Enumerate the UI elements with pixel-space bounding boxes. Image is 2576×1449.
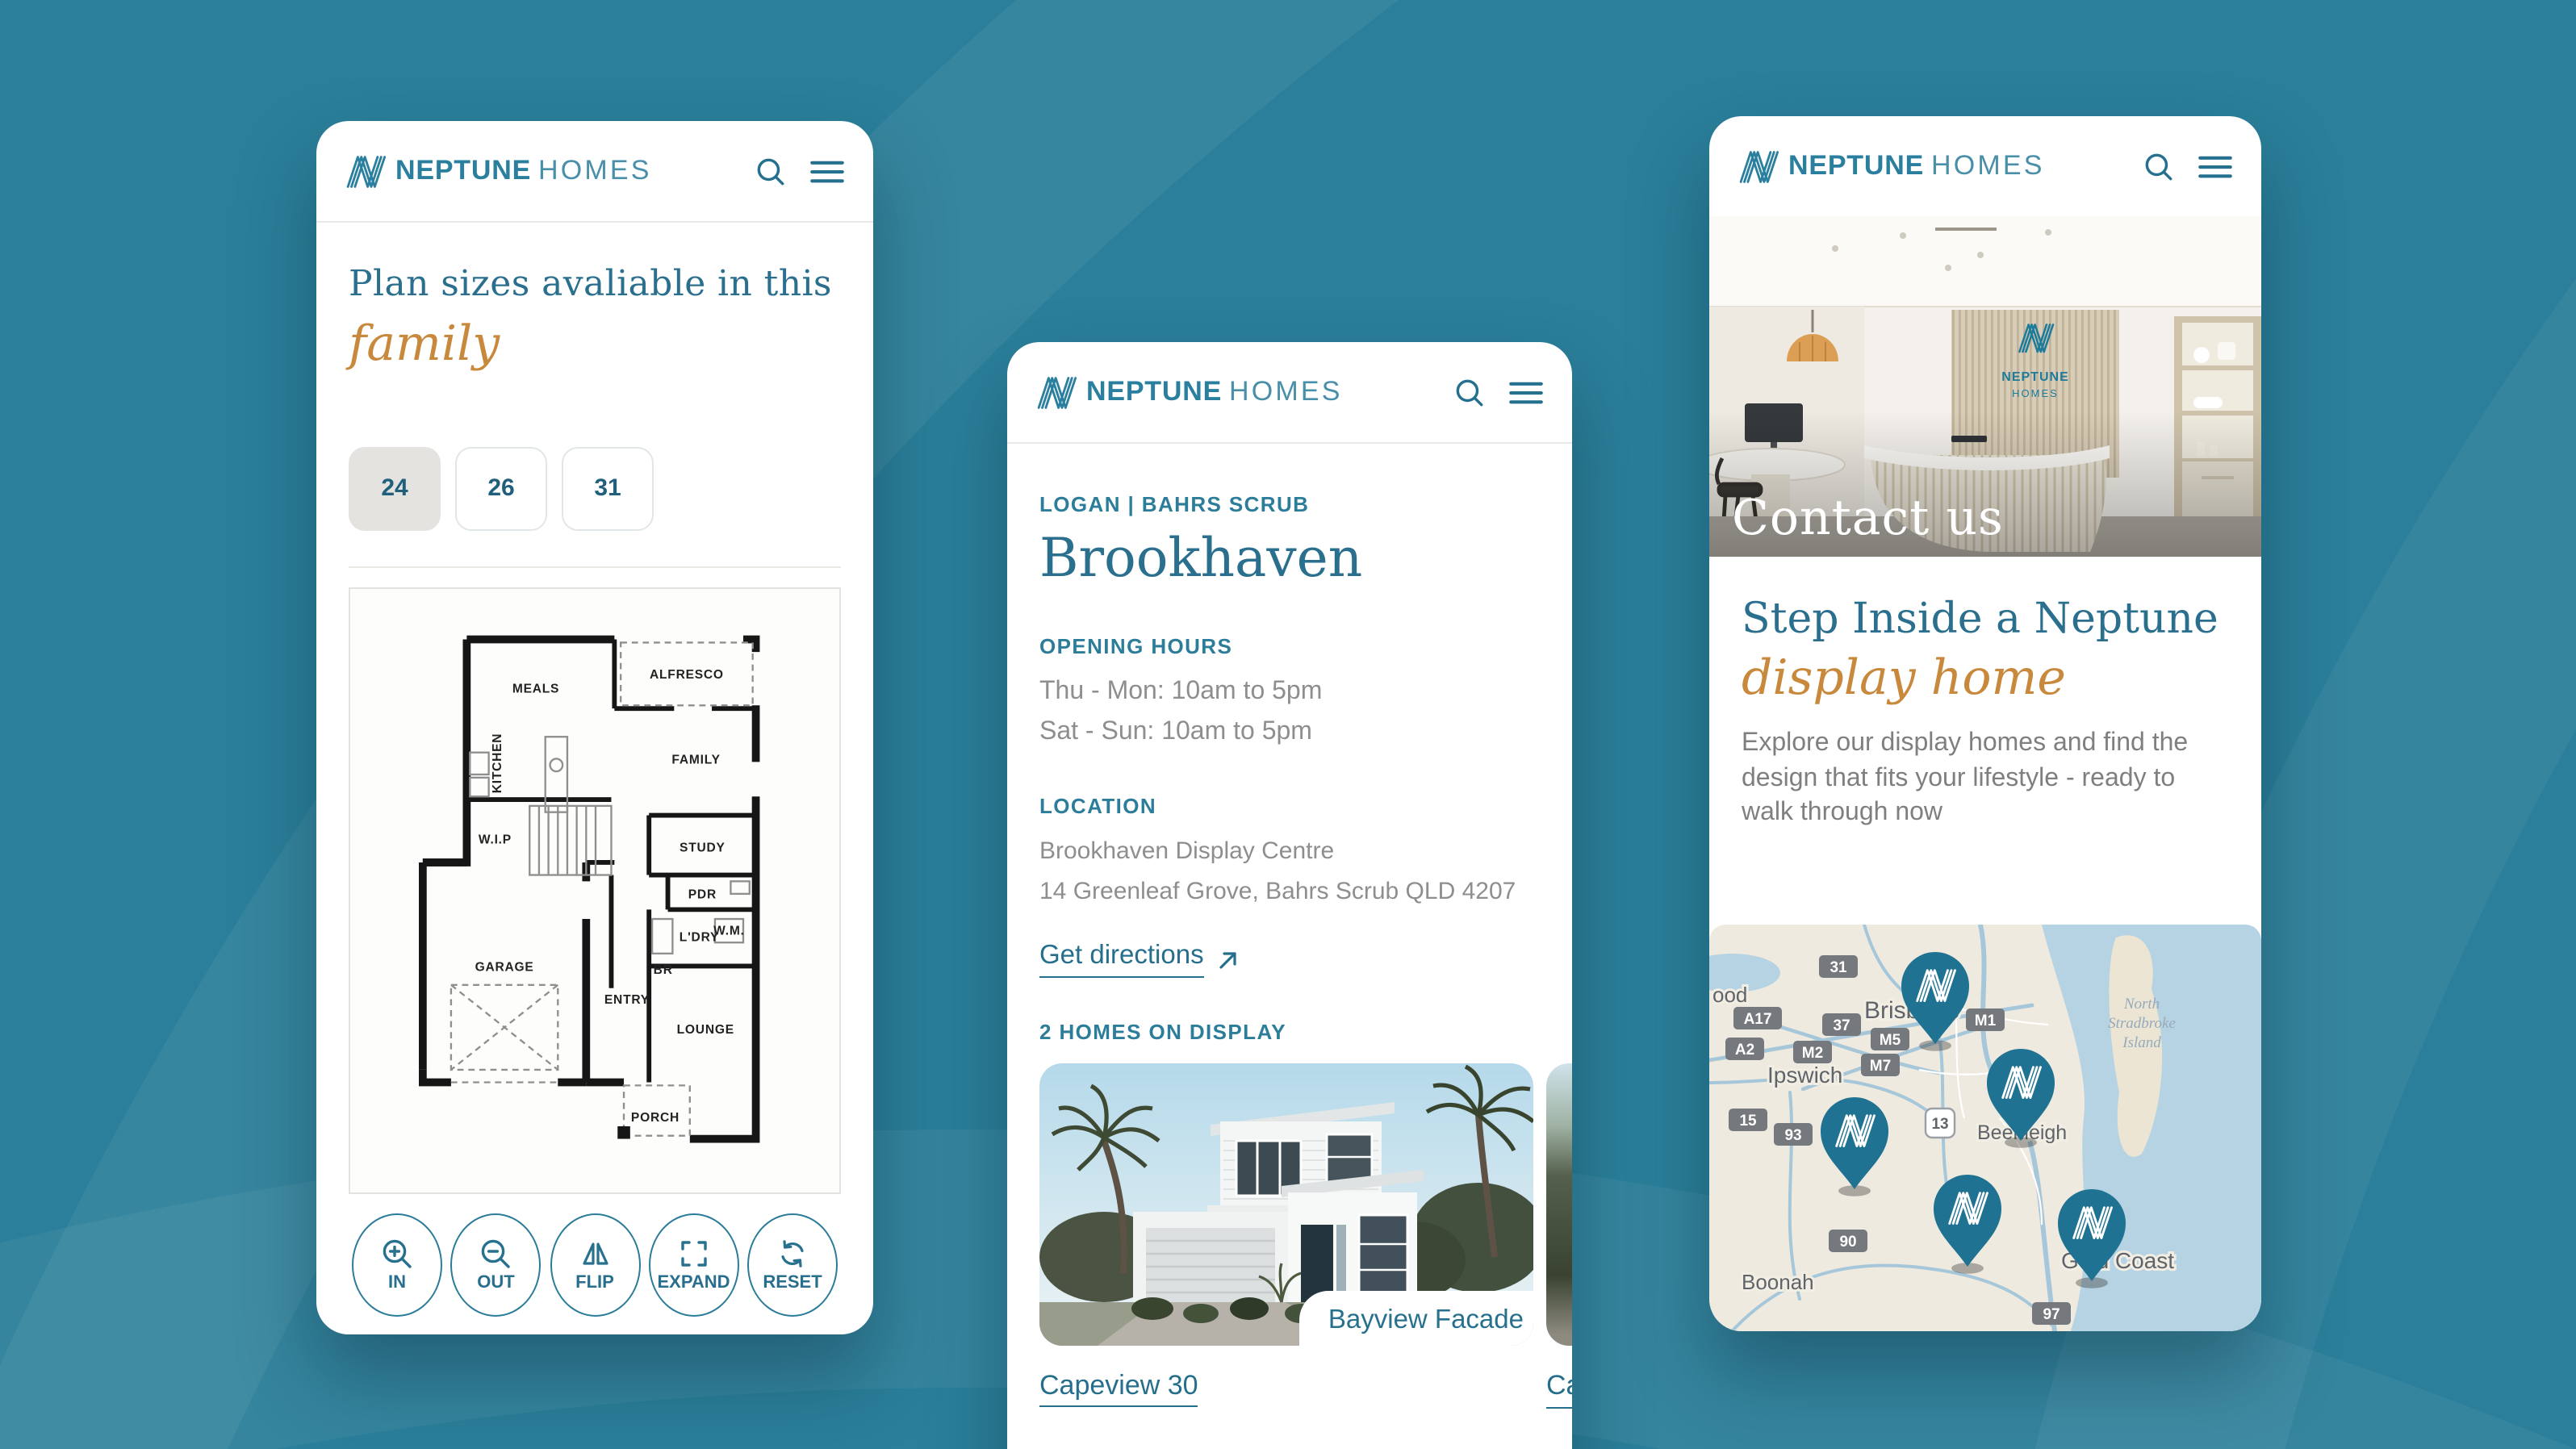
map-label-boonah: Boonah: [1742, 1270, 1814, 1294]
location-label: LOCATION: [1039, 794, 1540, 818]
neptune-homes-logo[interactable]: NEPTUNE HOMES: [1036, 375, 1343, 409]
mockup-canvas: NEPTUNE HOMES Plan sizes avaliable in th…: [0, 0, 2576, 1449]
header-divider: [1007, 442, 1572, 444]
control-label: EXPAND: [657, 1272, 730, 1292]
room-label: FAMILY: [671, 753, 719, 766]
map-label-island: Island: [2122, 1034, 2161, 1051]
room-label: PORCH: [630, 1111, 679, 1125]
control-label: IN: [388, 1272, 406, 1292]
get-directions-link[interactable]: Get directions: [1039, 941, 1204, 978]
map-label-ipswich: Ipswich: [1767, 1063, 1842, 1088]
zoom-out-button[interactable]: OUT: [451, 1213, 542, 1316]
section-heading: Step Inside a Neptune: [1742, 595, 2229, 644]
logo-text-primary: NEPTUNE: [1788, 150, 1924, 181]
room-label: W.M.: [713, 924, 744, 937]
page-title: Brookhaven: [1039, 526, 1540, 589]
page-title: Plan sizes avaliable in this: [349, 261, 841, 309]
map-label-island: North: [2123, 996, 2160, 1013]
phone-plan-sizes: NEPTUNE HOMES Plan sizes avaliable in th…: [316, 121, 873, 1334]
home-design-link-next[interactable]: Ca: [1546, 1370, 1572, 1409]
svg-text:15: 15: [1739, 1113, 1757, 1130]
location-address: 14 Greenleaf Grove, Bahrs Scrub QLD 4207: [1039, 871, 1540, 912]
search-icon[interactable]: [1454, 377, 1485, 407]
logo-text-secondary: HOMES: [1229, 376, 1343, 407]
svg-text:M1: M1: [1975, 1013, 1997, 1029]
homes-on-display-label: 2 HOMES ON DISPLAY: [1039, 1020, 1540, 1044]
map-label-island: Stradbroke: [2108, 1015, 2176, 1032]
location-name: Brookhaven Display Centre: [1039, 831, 1540, 871]
room-label: W.I.P: [478, 833, 511, 846]
wall-logo-secondary: HOMES: [2012, 387, 2059, 399]
display-home-card[interactable]: Bayview Facade: [1039, 1063, 1533, 1346]
hours-line: Thu - Mon: 10am to 5pm: [1039, 671, 1540, 712]
header-divider: [316, 221, 873, 223]
site-header: NEPTUNE HOMES: [1007, 342, 1572, 442]
contact-hero: NEPTUNE HOMES: [1709, 216, 2261, 557]
logo-text-secondary: HOMES: [1931, 150, 2045, 181]
svg-text:M5: M5: [1880, 1032, 1901, 1049]
facade-name-tab: Bayview Facade: [1299, 1291, 1533, 1346]
svg-text:31: 31: [1830, 959, 1847, 976]
logo-text-primary: NEPTUNE: [1086, 376, 1222, 407]
neptune-homes-logo[interactable]: NEPTUNE HOMES: [1738, 149, 2045, 183]
control-label: FLIP: [575, 1272, 614, 1292]
svg-text:M2: M2: [1802, 1045, 1823, 1062]
tab-size-26[interactable]: 26: [455, 446, 547, 530]
svg-text:37: 37: [1833, 1017, 1850, 1034]
phone-contact-us: NEPTUNE HOMES: [1709, 116, 2261, 1331]
section-heading-script: display home: [1742, 650, 2229, 707]
svg-text:A2: A2: [1735, 1042, 1754, 1059]
room-label: GARAGE: [475, 960, 533, 974]
map-canvas: Brisbane Ipswich Boonah Beenleigh Gold C…: [1709, 925, 2261, 1331]
hours-line: Sat - Sun: 10am to 5pm: [1039, 712, 1540, 752]
menu-icon[interactable]: [2198, 154, 2232, 178]
flip-icon: [579, 1237, 611, 1269]
section-body-text: Explore our display homes and find the d…: [1742, 726, 2229, 830]
map-label-partial: ood: [1712, 983, 1747, 1007]
svg-text:93: 93: [1784, 1127, 1801, 1144]
plan-size-tabs: 24 26 31: [349, 446, 841, 530]
floorplan-viewer[interactable]: MEALS ALFRESCO KITCHEN FAMILY W.I.P STUD…: [349, 587, 841, 1193]
logo-text-primary: NEPTUNE: [395, 155, 531, 186]
flip-button[interactable]: FLIP: [550, 1213, 640, 1316]
menu-icon[interactable]: [1509, 380, 1543, 404]
floorplan-controls: IN OUT FLIP: [349, 1213, 841, 1316]
search-icon[interactable]: [755, 156, 786, 186]
tab-size-24[interactable]: 24: [349, 446, 441, 530]
room-label: PDR: [688, 887, 716, 901]
expand-icon: [678, 1237, 710, 1269]
room-label: MEALS: [512, 682, 558, 695]
reset-icon: [776, 1237, 809, 1269]
expand-button[interactable]: EXPAND: [649, 1213, 739, 1316]
zoom-in-button[interactable]: IN: [352, 1213, 442, 1316]
room-label: ALFRESCO: [649, 668, 723, 682]
section-divider: [349, 566, 841, 567]
room-label: LOUNGE: [676, 1023, 734, 1037]
svg-text:90: 90: [1839, 1234, 1856, 1251]
phone-display-centre: NEPTUNE HOMES LOGAN | BAHRS SCRUB Brookh…: [1007, 342, 1572, 1449]
svg-text:97: 97: [2043, 1306, 2060, 1323]
neptune-homes-logo[interactable]: NEPTUNE HOMES: [345, 154, 652, 188]
site-header: NEPTUNE HOMES: [316, 121, 873, 221]
floorplan-drawing: MEALS ALFRESCO KITCHEN FAMILY W.I.P STUD…: [359, 609, 830, 1171]
facade-name: Bayview Facade: [1328, 1305, 1524, 1334]
display-home-card-next[interactable]: [1546, 1063, 1572, 1346]
breadcrumb[interactable]: LOGAN | BAHRS SCRUB: [1039, 492, 1540, 516]
display-homes-map[interactable]: Brisbane Ipswich Boonah Beenleigh Gold C…: [1709, 925, 2261, 1331]
search-icon[interactable]: [2143, 151, 2174, 182]
wall-logo-primary: NEPTUNE: [2001, 370, 2068, 384]
room-label: ENTRY: [604, 993, 649, 1007]
site-header: NEPTUNE HOMES: [1709, 116, 2261, 216]
control-label: RESET: [763, 1272, 822, 1292]
neptune-n-icon: [1738, 149, 1779, 183]
reset-button[interactable]: RESET: [747, 1213, 838, 1316]
opening-hours-label: OPENING HOURS: [1039, 634, 1540, 658]
external-arrow-icon: [1217, 948, 1240, 971]
display-homes-carousel: Bayview Facade: [1039, 1063, 1540, 1346]
room-label: BR: [653, 963, 672, 977]
svg-text:M7: M7: [1870, 1058, 1891, 1075]
room-label: STUDY: [679, 841, 725, 854]
svg-text:A17: A17: [1744, 1011, 1772, 1028]
page-title-script: family: [349, 315, 841, 372]
logo-text-secondary: HOMES: [538, 155, 652, 186]
neptune-n-icon: [345, 154, 386, 188]
zoom-in-icon: [381, 1237, 413, 1269]
hero-title: Contact us: [1732, 491, 2004, 547]
home-design-link[interactable]: Capeview 30: [1039, 1370, 1198, 1407]
tab-size-31[interactable]: 31: [562, 446, 654, 530]
svg-text:13: 13: [1931, 1116, 1948, 1133]
control-label: OUT: [477, 1272, 514, 1292]
room-label: KITCHEN: [490, 733, 504, 793]
zoom-out-icon: [480, 1237, 512, 1269]
menu-icon[interactable]: [810, 159, 844, 183]
neptune-n-icon: [1036, 375, 1077, 409]
